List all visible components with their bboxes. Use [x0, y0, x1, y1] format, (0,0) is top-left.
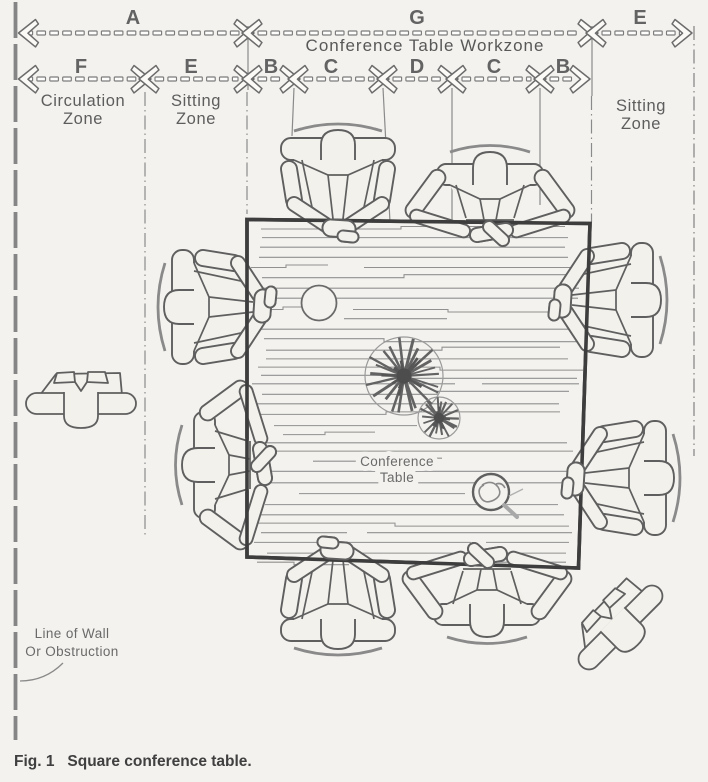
svg-text:Zone: Zone: [176, 110, 216, 128]
svg-text:E: E: [633, 7, 646, 29]
svg-text:A: A: [126, 7, 140, 29]
svg-text:Conference Table Workzone: Conference Table Workzone: [306, 36, 545, 55]
svg-text:Zone: Zone: [621, 115, 661, 133]
svg-text:C: C: [324, 56, 338, 78]
svg-text:G: G: [409, 7, 425, 29]
svg-text:Circulation: Circulation: [41, 92, 126, 110]
svg-text:Or Obstruction: Or Obstruction: [25, 644, 118, 659]
svg-text:C: C: [487, 56, 501, 78]
svg-text:Zone: Zone: [63, 110, 103, 128]
svg-text:F: F: [75, 56, 87, 78]
svg-text:D: D: [410, 56, 424, 78]
svg-text:B: B: [264, 56, 278, 78]
svg-text:Line of Wall: Line of Wall: [35, 626, 110, 641]
svg-text:Table: Table: [380, 470, 414, 485]
svg-text:Sitting: Sitting: [171, 92, 221, 110]
svg-text:E: E: [184, 56, 197, 78]
svg-text:Fig. 1 Square conference tab: Fig. 1 Square conference table.: [14, 753, 252, 770]
svg-text:B: B: [556, 56, 570, 78]
svg-text:Conference: Conference: [360, 454, 434, 469]
svg-text:Sitting: Sitting: [616, 97, 666, 115]
